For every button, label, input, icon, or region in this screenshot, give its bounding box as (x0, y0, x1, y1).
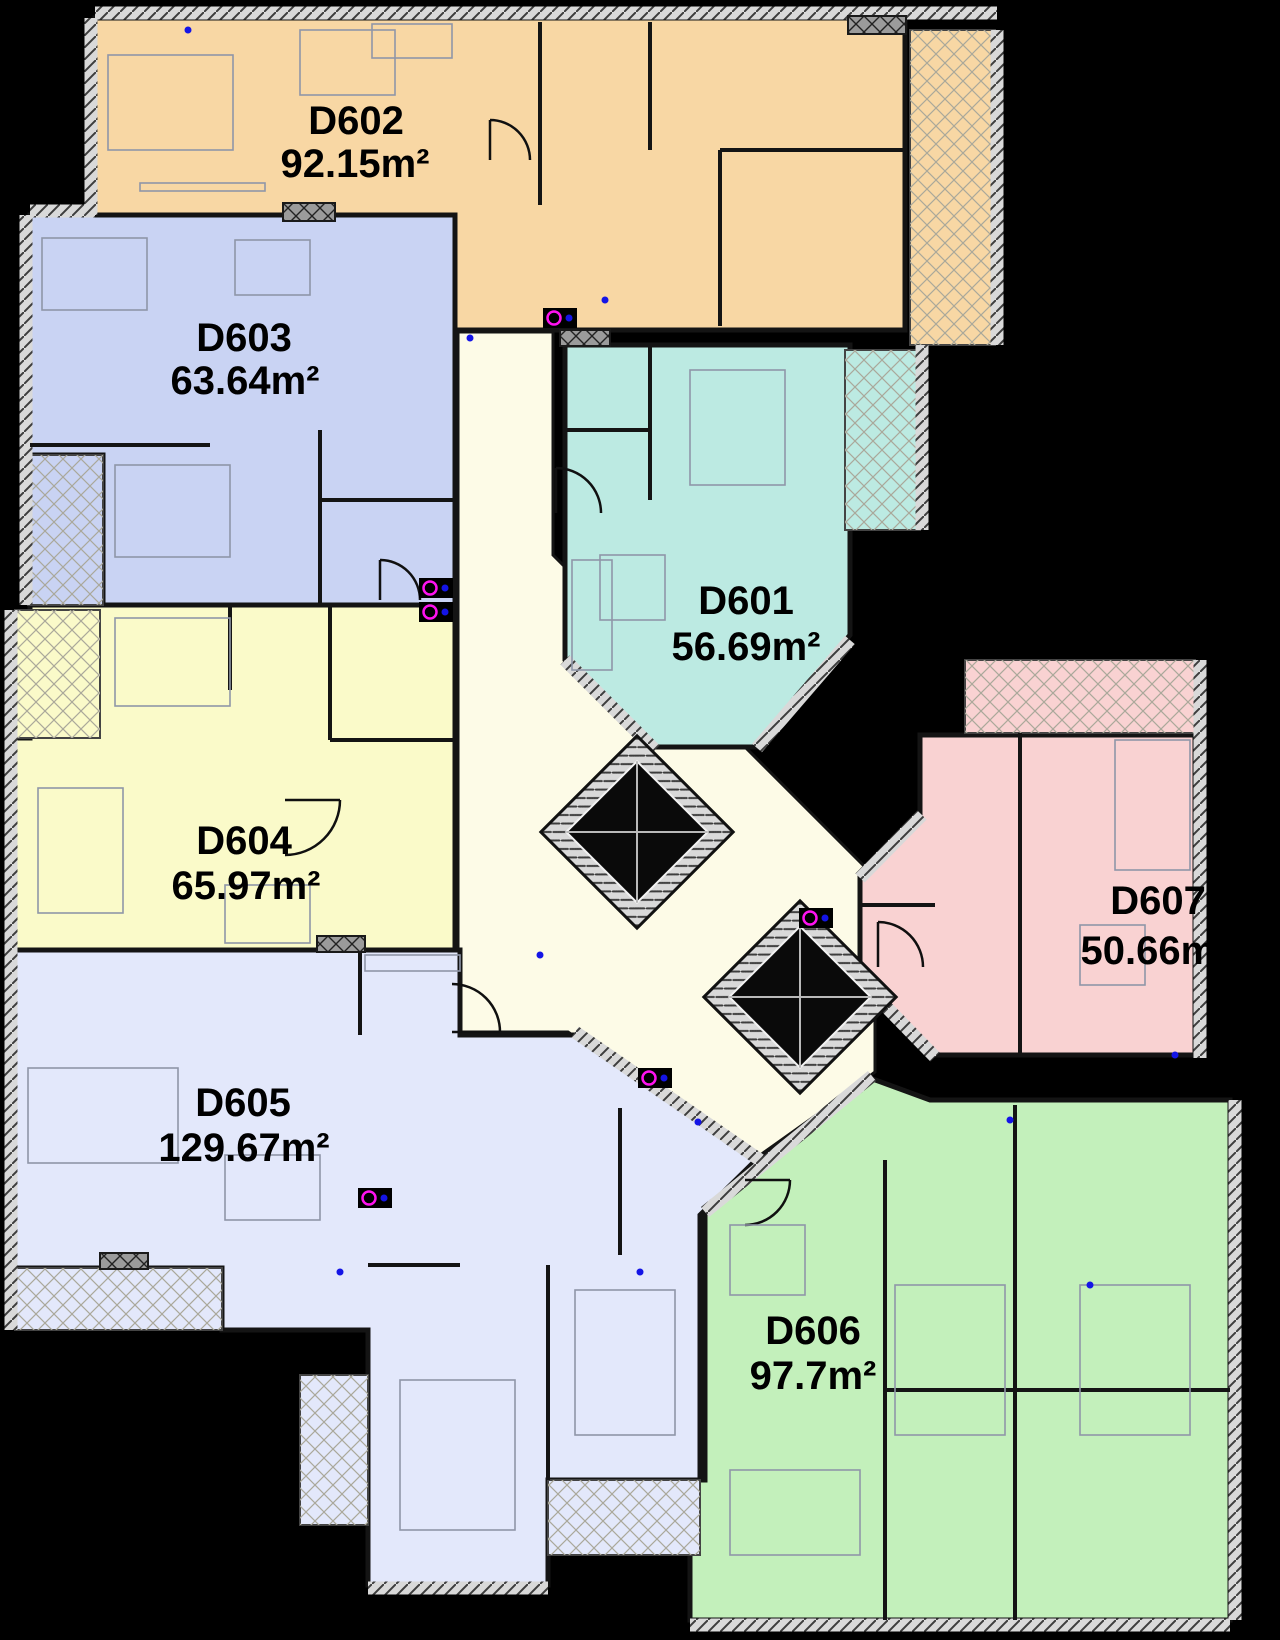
label-d602-area: 92.15m² (281, 142, 430, 186)
label-d602-name: D602 (308, 99, 404, 143)
label-d607-name: D607 (1110, 879, 1206, 923)
label-d604-name: D604 (196, 819, 292, 863)
label-d603-area: 63.64m² (171, 359, 320, 403)
meter-marker (543, 308, 577, 328)
meter-marker (419, 602, 453, 622)
meter-marker (358, 1188, 392, 1208)
meter-marker (638, 1068, 672, 1088)
meter-marker (419, 578, 453, 598)
floor-plan-canvas: D602 92.15m² D603 63.64m² D601 56.69m² D… (0, 0, 1280, 1640)
balcony-d605-left (15, 1268, 222, 1330)
balcony-d604 (15, 610, 100, 738)
label-d604-area: 65.97m² (172, 864, 321, 908)
floor-plan-svg: D602 92.15m² D603 63.64m² D601 56.69m² D… (0, 0, 1280, 1640)
label-d605-name: D605 (195, 1081, 291, 1125)
meter-marker (799, 908, 833, 928)
label-d607-area: 50.66m² (1081, 929, 1230, 973)
balcony-d603 (28, 455, 103, 605)
label-d606-area: 97.7m² (750, 1354, 877, 1398)
balcony-d607 (965, 660, 1195, 733)
label-d601-name: D601 (698, 579, 794, 623)
label-d605-area: 129.67m² (158, 1126, 329, 1170)
label-d606-name: D606 (765, 1309, 861, 1353)
balcony-d605-bottom (548, 1480, 700, 1555)
label-d601-area: 56.69m² (672, 625, 821, 669)
balcony-d601 (845, 350, 920, 530)
balcony-d605-mid (300, 1375, 368, 1525)
label-d603-name: D603 (196, 316, 292, 360)
balcony-d602 (910, 30, 995, 345)
